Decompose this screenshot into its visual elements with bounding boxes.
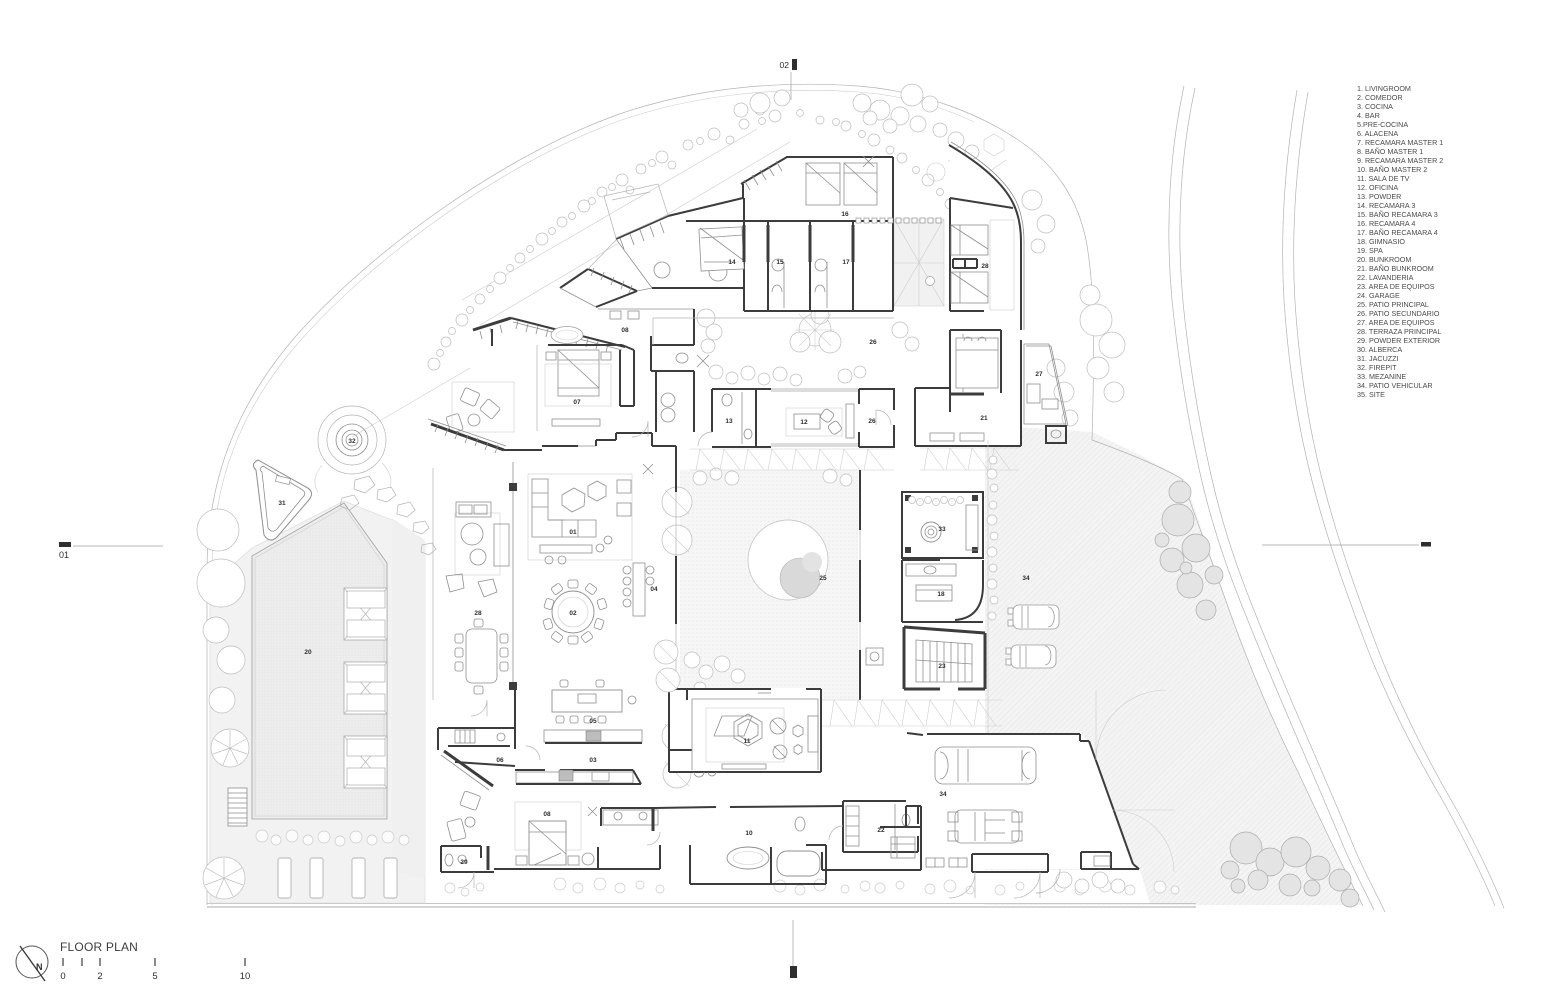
svg-text:08: 08: [621, 327, 629, 334]
svg-text:15. BAÑO RECAMARA 3: 15. BAÑO RECAMARA 3: [1357, 210, 1438, 219]
svg-text:21. BAÑO BUNKROOM: 21. BAÑO BUNKROOM: [1357, 264, 1434, 273]
svg-text:25: 25: [819, 575, 827, 582]
svg-text:26. PATIO SECUNDARIO: 26. PATIO SECUNDARIO: [1357, 309, 1440, 318]
svg-text:16: 16: [841, 211, 849, 218]
svg-text:14: 14: [728, 259, 736, 266]
svg-text:8. BAÑO MASTER 1: 8. BAÑO MASTER 1: [1357, 147, 1423, 156]
svg-text:30. ALBERCA: 30. ALBERCA: [1357, 345, 1402, 354]
svg-text:22. LAVANDERIA: 22. LAVANDERIA: [1357, 273, 1414, 282]
svg-text:17. BAÑO RECAMARA 4: 17. BAÑO RECAMARA 4: [1357, 228, 1438, 237]
svg-text:07: 07: [573, 399, 581, 406]
svg-text:31. JACUZZI: 31. JACUZZI: [1357, 354, 1399, 363]
svg-text:25. PATIO PRINCIPAL: 25. PATIO PRINCIPAL: [1357, 300, 1429, 309]
svg-text:32. FIREPIT: 32. FIREPIT: [1357, 363, 1397, 372]
svg-text:27. AREA DE EQUIPOS: 27. AREA DE EQUIPOS: [1357, 318, 1435, 327]
svg-text:23: 23: [938, 663, 946, 670]
svg-text:22: 22: [877, 827, 885, 834]
svg-text:08: 08: [543, 811, 551, 818]
svg-text:33. MEZANINE: 33. MEZANINE: [1357, 372, 1406, 381]
svg-text:18. GIMNASIO: 18. GIMNASIO: [1357, 237, 1405, 246]
svg-text:26: 26: [869, 339, 877, 346]
svg-text:31: 31: [278, 500, 286, 507]
svg-text:13. POWDER: 13. POWDER: [1357, 192, 1401, 201]
svg-text:5: 5: [152, 971, 157, 982]
svg-text:28. TERRAZA PRINCIPAL: 28. TERRAZA PRINCIPAL: [1357, 327, 1441, 336]
svg-text:14. RECAMARA 3: 14. RECAMARA 3: [1357, 201, 1415, 210]
svg-text:34: 34: [939, 791, 947, 798]
svg-text:10: 10: [240, 971, 251, 982]
svg-text:0: 0: [60, 971, 65, 982]
svg-text:28: 28: [474, 610, 482, 617]
svg-text:03: 03: [589, 757, 597, 764]
svg-text:9. RECAMARA MASTER 2: 9. RECAMARA MASTER 2: [1357, 156, 1443, 165]
svg-text:20: 20: [304, 649, 312, 656]
svg-text:35. SITE: 35. SITE: [1357, 390, 1385, 399]
svg-text:11. SALA DE TV: 11. SALA DE TV: [1357, 174, 1410, 183]
svg-text:24. GARAGE: 24. GARAGE: [1357, 291, 1400, 300]
svg-text:4. BAR: 4. BAR: [1357, 111, 1380, 120]
svg-text:05: 05: [589, 718, 597, 725]
svg-text:06: 06: [496, 757, 504, 764]
svg-text:32: 32: [348, 438, 356, 445]
svg-text:17: 17: [842, 259, 850, 266]
svg-text:13: 13: [725, 418, 733, 425]
svg-text:15: 15: [776, 259, 784, 266]
svg-text:26: 26: [868, 418, 876, 425]
svg-text:28: 28: [981, 263, 989, 270]
svg-text:5.PRE-COCINA: 5.PRE-COCINA: [1357, 120, 1408, 129]
svg-text:10: 10: [745, 830, 753, 837]
svg-text:3. COCINA: 3. COCINA: [1357, 102, 1393, 111]
svg-text:20. BUNKROOM: 20. BUNKROOM: [1357, 255, 1411, 264]
svg-text:1. LIVINGROOM: 1. LIVINGROOM: [1357, 84, 1411, 93]
svg-text:11: 11: [744, 738, 751, 745]
svg-text:01: 01: [59, 550, 69, 560]
svg-text:02: 02: [569, 610, 577, 617]
svg-text:02: 02: [780, 60, 790, 70]
svg-text:23. AREA DE EQUIPOS: 23. AREA DE EQUIPOS: [1357, 282, 1435, 291]
svg-text:29. POWDER EXTERIOR: 29. POWDER EXTERIOR: [1357, 336, 1440, 345]
svg-text:12: 12: [800, 419, 808, 426]
svg-text:16. RECAMARA 4: 16. RECAMARA 4: [1357, 219, 1415, 228]
svg-text:21: 21: [980, 415, 988, 422]
svg-text:34: 34: [1022, 575, 1030, 582]
svg-text:N: N: [36, 962, 43, 972]
svg-text:29: 29: [460, 859, 468, 866]
svg-text:33: 33: [938, 526, 946, 533]
svg-text:04: 04: [650, 586, 658, 593]
svg-text:10. BAÑO MASTER 2: 10. BAÑO MASTER 2: [1357, 165, 1427, 174]
svg-text:7. RECAMARA MASTER 1: 7. RECAMARA MASTER 1: [1357, 138, 1443, 147]
svg-text:12. OFICINA: 12. OFICINA: [1357, 183, 1398, 192]
svg-text:34. PATIO VEHICULAR: 34. PATIO VEHICULAR: [1357, 381, 1433, 390]
svg-text:2: 2: [97, 971, 102, 982]
svg-text:2. COMEDOR: 2. COMEDOR: [1357, 93, 1403, 102]
svg-text:FLOOR PLAN: FLOOR PLAN: [60, 940, 138, 954]
svg-text:19. SPA: 19. SPA: [1357, 246, 1383, 255]
svg-text:18: 18: [937, 591, 945, 598]
svg-text:01: 01: [569, 529, 577, 536]
svg-text:6. ALACENA: 6. ALACENA: [1357, 129, 1398, 138]
svg-text:27: 27: [1035, 371, 1043, 378]
